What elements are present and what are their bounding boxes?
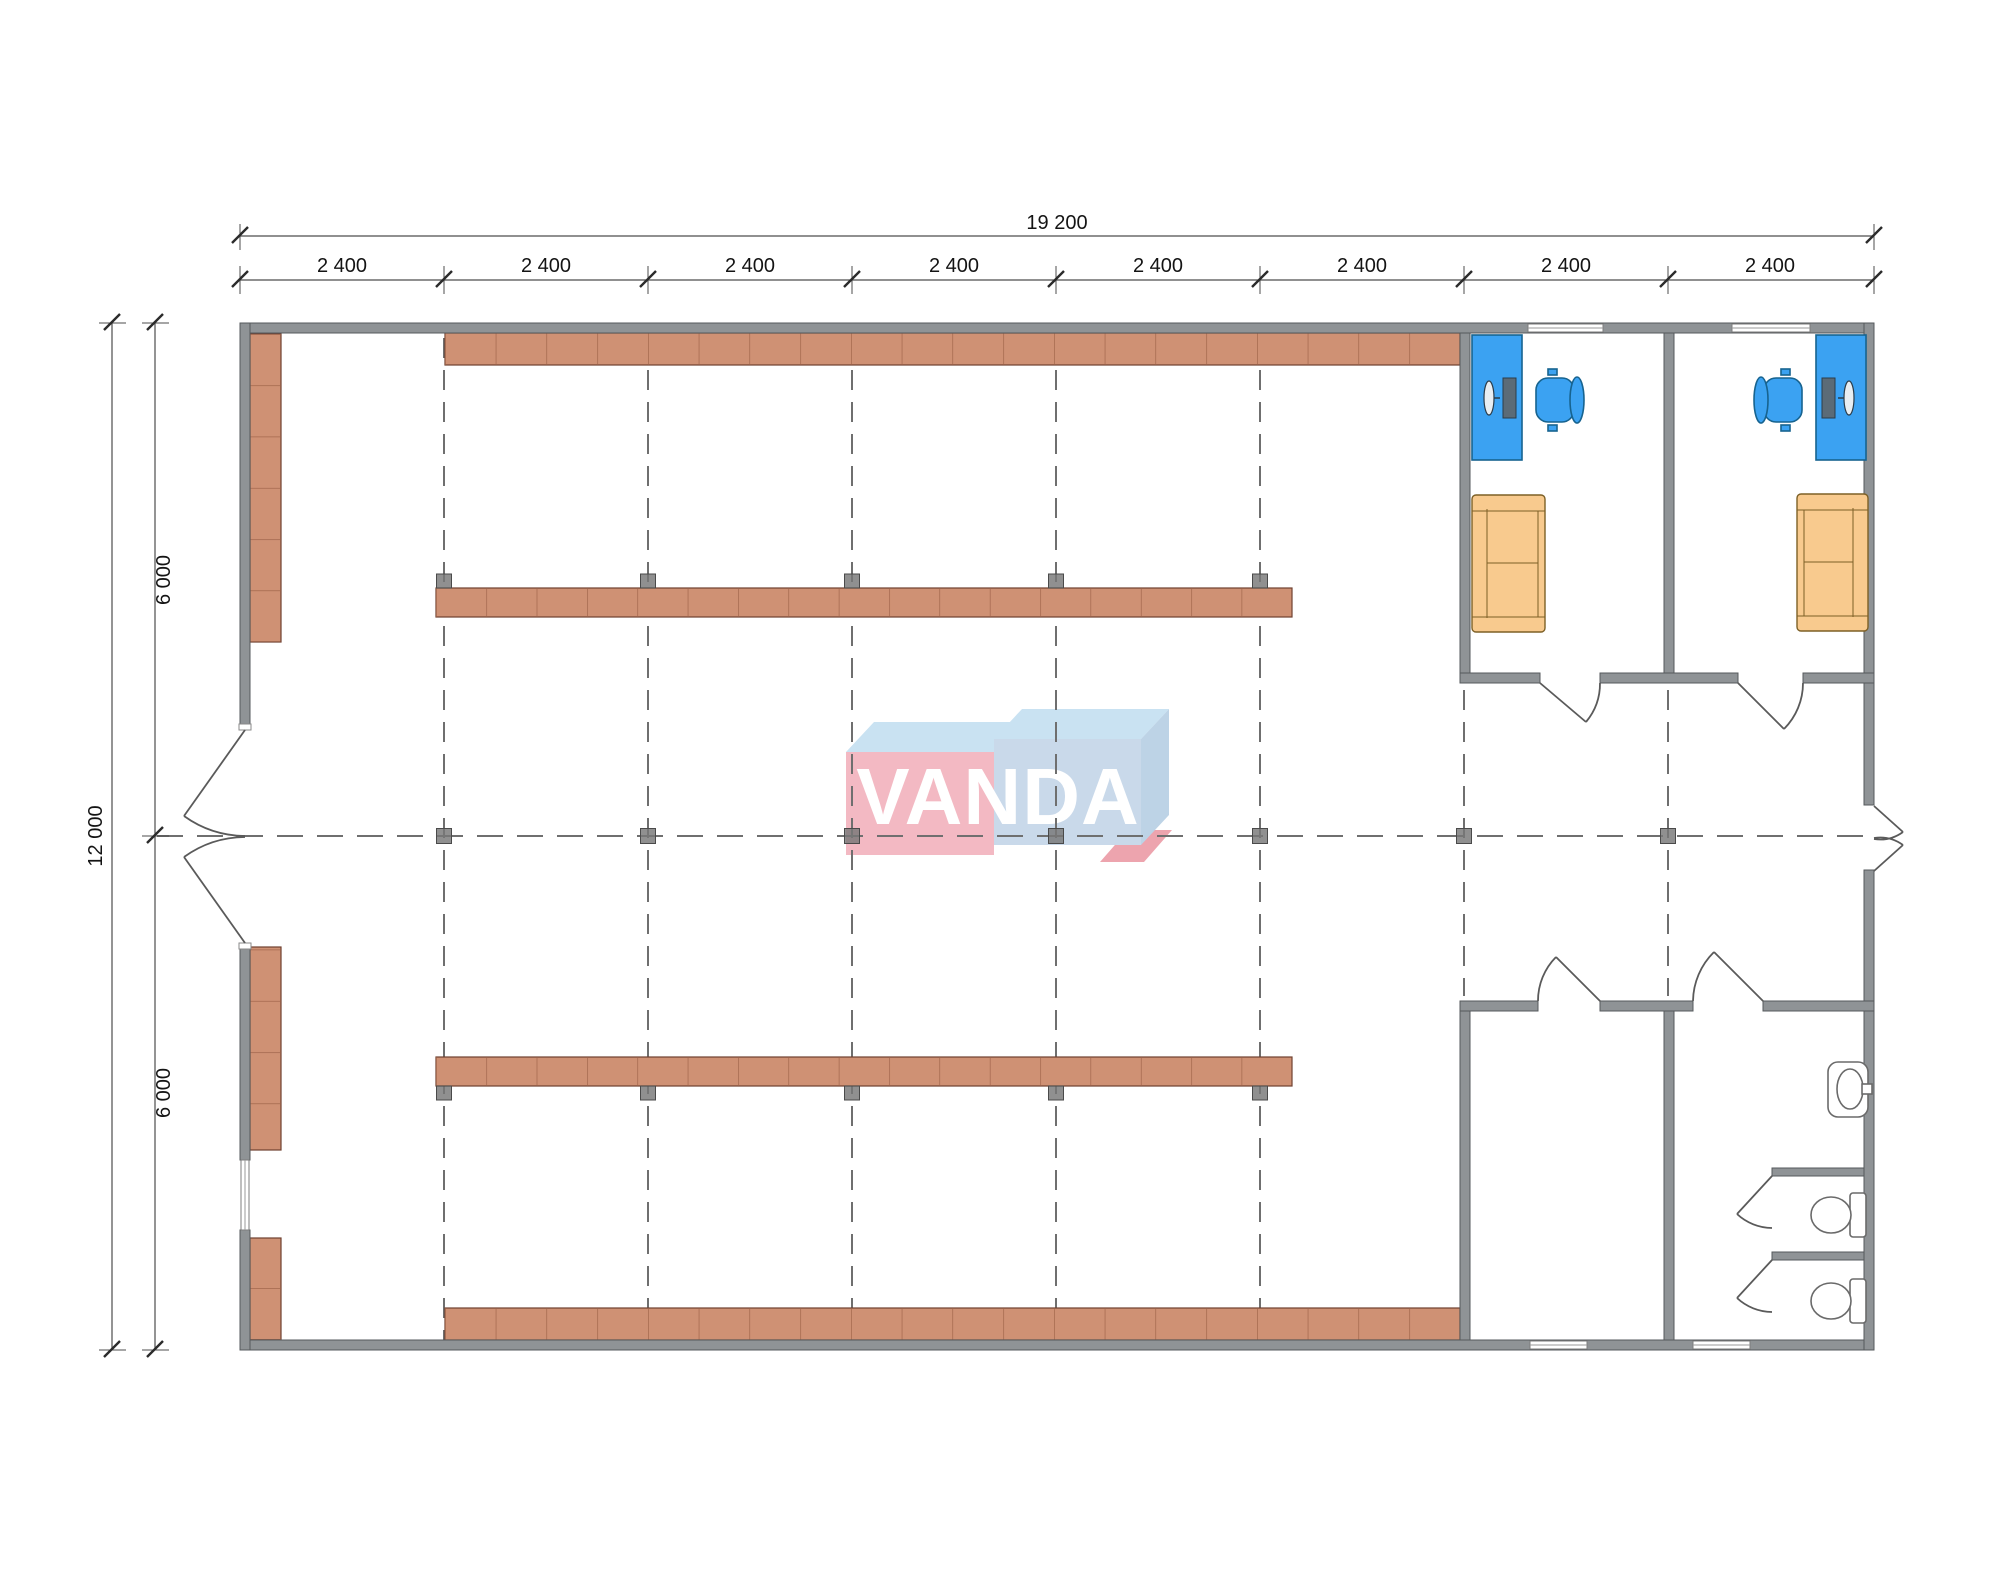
column-stub [641, 1086, 656, 1100]
dim-label-total-width: 19 200 [1026, 212, 1087, 234]
window-bottom-1 [1530, 1341, 1587, 1349]
toilet-stall-1-door [1737, 1176, 1772, 1228]
column-stub [437, 574, 452, 588]
storage-room-door [1538, 957, 1600, 1001]
wall-storage-top-1 [1460, 1001, 1538, 1011]
shelf-middle-upper [436, 588, 1292, 617]
wall-top [240, 323, 1874, 333]
wall-office-bottom-1 [1460, 673, 1540, 683]
toilet-stall-2-door [1737, 1260, 1772, 1312]
dim-label-bay: 2 400 [317, 255, 367, 277]
shelf-left-wall-lower-a [250, 947, 281, 1150]
bathroom [1811, 1062, 1872, 1323]
column-stub [845, 574, 860, 588]
column-marker [641, 829, 656, 844]
wall-left-lower [240, 943, 250, 1160]
floor-plan-canvas: VANDA [0, 0, 2000, 1574]
toilet-icon [1811, 1193, 1866, 1237]
dim-label-bay: 2 400 [521, 255, 571, 277]
shelf-row-bottom [445, 1308, 1460, 1340]
sink-icon [1828, 1062, 1872, 1117]
dim-label-bay: 2 400 [1133, 255, 1183, 277]
column-marker [437, 829, 452, 844]
side-exit-door [1874, 806, 1903, 871]
logo-right-top-face [994, 709, 1169, 739]
column-marker [1253, 829, 1268, 844]
monitor-icon [1844, 381, 1854, 415]
column-stub [437, 1086, 452, 1100]
office-chair-icon [1536, 369, 1584, 431]
wall-toilet-stall-1 [1772, 1168, 1864, 1176]
dim-label-half-height: 6 000 [153, 1068, 175, 1118]
wall-storage-top-3 [1763, 1001, 1874, 1011]
wall-bathroom-separator [1664, 1011, 1674, 1340]
wall-left-bottom [240, 1230, 250, 1350]
shelf-left-wall-lower-b [250, 1238, 281, 1340]
dim-label-bay: 2 400 [1745, 255, 1795, 277]
column-marker [1661, 829, 1676, 844]
keyboard-icon [1822, 378, 1835, 418]
logo-text: VANDA [856, 752, 1140, 841]
dim-label-bay: 2 400 [929, 255, 979, 277]
office-1 [1472, 335, 1584, 632]
column-marker [845, 829, 860, 844]
wall-toilet-stall-2 [1772, 1252, 1864, 1260]
column-marker [1049, 829, 1064, 844]
office-chair-icon [1754, 369, 1802, 431]
shelf-row-top [445, 333, 1460, 365]
column-stub [1253, 574, 1268, 588]
wall-office-separator [1664, 333, 1674, 673]
dim-label-bay: 2 400 [1541, 255, 1591, 277]
office-2-door [1738, 683, 1803, 729]
vanda-logo: VANDA [846, 709, 1172, 862]
shelf-middle-lower [436, 1057, 1292, 1086]
column-stub [1049, 574, 1064, 588]
wall-office-bottom-2 [1600, 673, 1738, 683]
window-left-wall [241, 1160, 249, 1230]
column-stub [1049, 1086, 1064, 1100]
monitor-icon [1484, 381, 1494, 415]
wall-bottom [240, 1340, 1874, 1350]
column-marker [1457, 829, 1472, 844]
floor-plan-drawing: VANDA [0, 0, 2000, 1574]
window-office-1 [1528, 324, 1603, 332]
sofa-icon [1472, 495, 1545, 632]
dim-label-total-height: 12 000 [85, 805, 107, 866]
column-stub [641, 574, 656, 588]
column-stub [845, 1086, 860, 1100]
window-bottom-2 [1693, 1341, 1750, 1349]
bathroom-door [1693, 952, 1763, 1001]
wall-storage-left [1460, 1011, 1470, 1340]
keyboard-icon [1503, 378, 1516, 418]
wall-office-bottom-3 [1803, 673, 1874, 683]
toilet-icon [1811, 1279, 1866, 1323]
wall-left-upper [240, 323, 250, 730]
wall-storage-top-2 [1600, 1001, 1693, 1011]
window-office-2 [1732, 324, 1810, 332]
dim-label-half-height: 6 000 [153, 555, 175, 605]
sofa-icon [1797, 494, 1868, 631]
shelf-left-wall-upper [250, 334, 281, 642]
wall-office-left [1460, 333, 1470, 673]
dim-label-bay: 2 400 [725, 255, 775, 277]
office-2 [1754, 335, 1868, 631]
column-stub [1253, 1086, 1268, 1100]
office-1-door [1540, 683, 1600, 722]
dim-label-bay: 2 400 [1337, 255, 1387, 277]
